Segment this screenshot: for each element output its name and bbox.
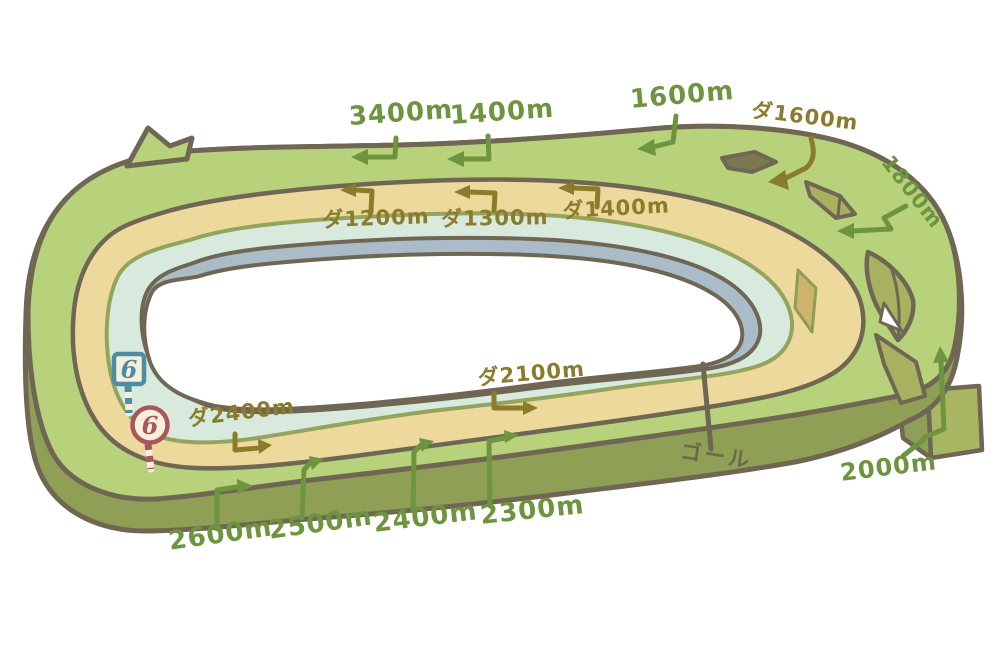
red-sign-digit: 6 [142,411,159,440]
blue-sign-digit: 6 [121,355,138,384]
label-d1400m: ダ1400m [562,195,670,222]
turf-chute-stub [127,128,192,166]
label-1400m: 1400m [449,96,555,129]
crossing-wedge-2-fold [838,196,840,216]
label-3400m: 3400m [348,97,454,130]
label-d1300m: ダ1300m [441,207,549,230]
racecourse-illustration: 6 6 [0,0,1000,650]
label-d1200m: ダ1200m [322,206,430,231]
